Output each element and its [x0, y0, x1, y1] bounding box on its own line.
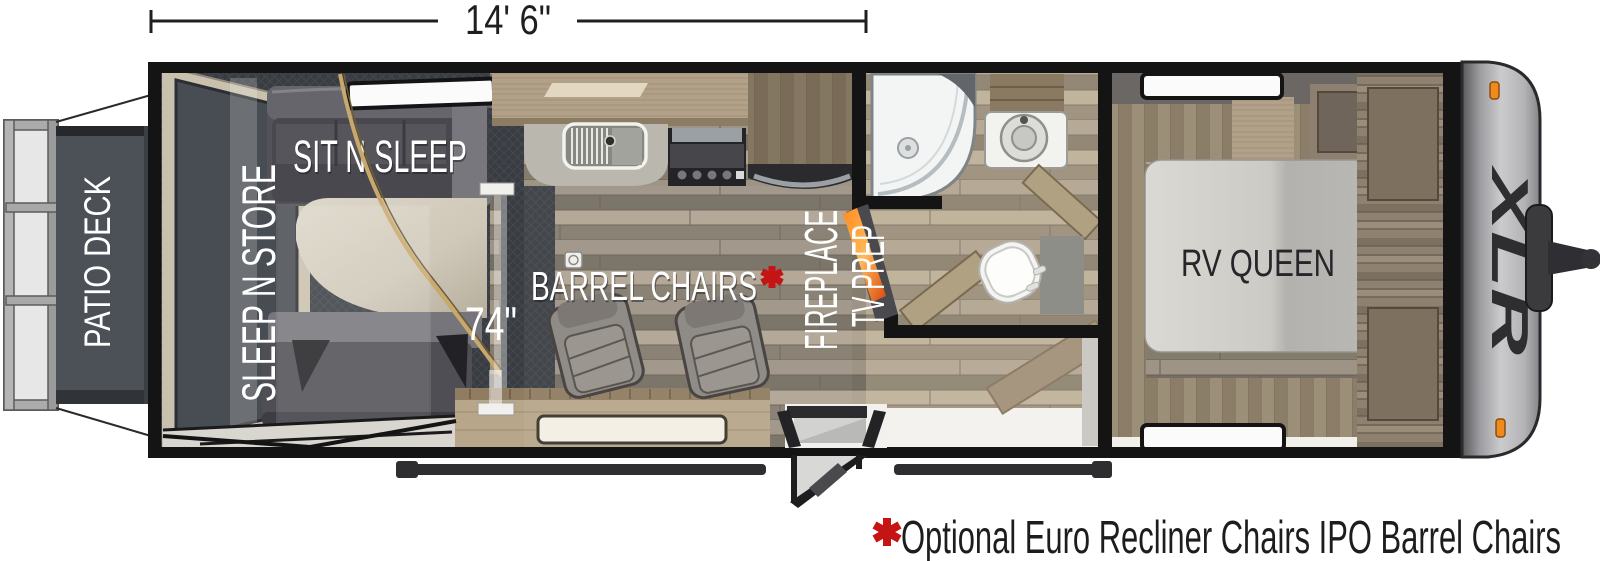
svg-text:BARREL CHAIRS: BARREL CHAIRS: [531, 263, 757, 309]
svg-text:Optional Euro Recliner Chairs: Optional Euro Recliner Chairs IPO Barrel…: [901, 511, 1561, 561]
svg-text:14' 6": 14' 6": [465, 0, 551, 43]
svg-text:PATIO DECK: PATIO DECK: [77, 176, 118, 348]
svg-text:TV PREP: TV PREP: [842, 225, 894, 327]
svg-text:74": 74": [465, 297, 517, 350]
svg-text:FIREPLACE: FIREPLACE: [795, 210, 847, 350]
svg-text:SLEEP N STORE: SLEEP N STORE: [232, 164, 285, 402]
svg-text:SIT N SLEEP: SIT N SLEEP: [293, 131, 467, 182]
svg-text:RV QUEEN: RV QUEEN: [1181, 243, 1335, 285]
